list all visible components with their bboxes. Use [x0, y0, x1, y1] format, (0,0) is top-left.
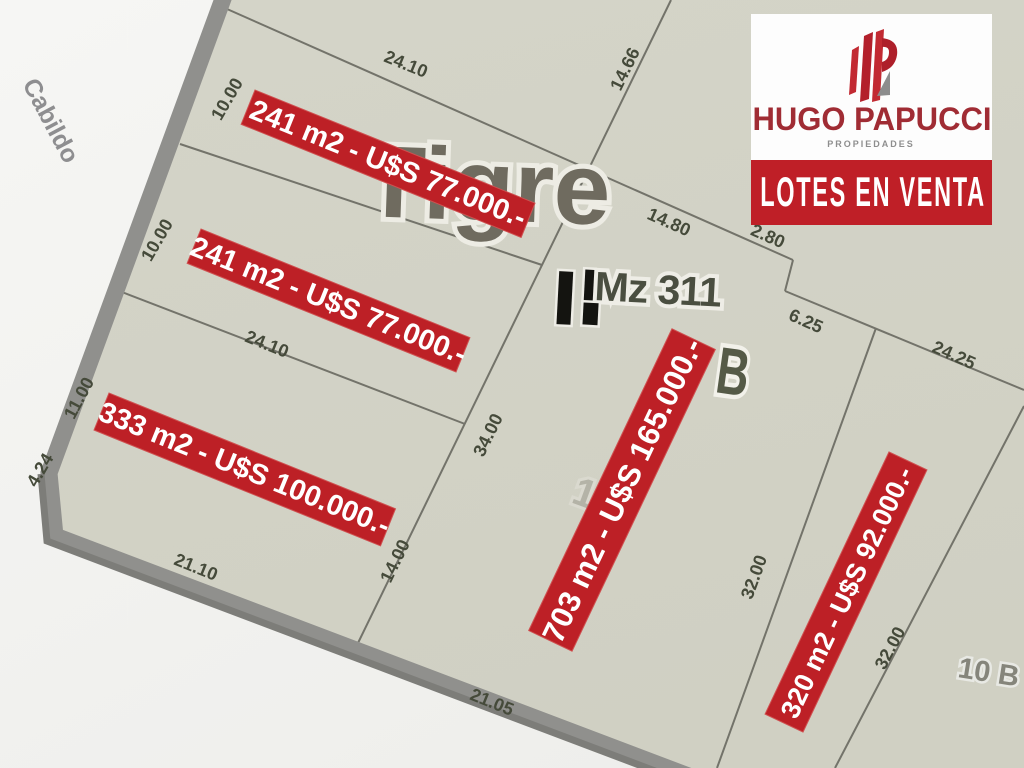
- svg-text:HUGO PAPUCCI: HUGO PAPUCCI: [752, 101, 991, 138]
- svg-text:LOTES EN VENTA: LOTES EN VENTA: [760, 169, 986, 216]
- svg-text:PROPIEDADES: PROPIEDADES: [827, 139, 915, 149]
- svg-text:Mz 311: Mz 311: [594, 263, 723, 316]
